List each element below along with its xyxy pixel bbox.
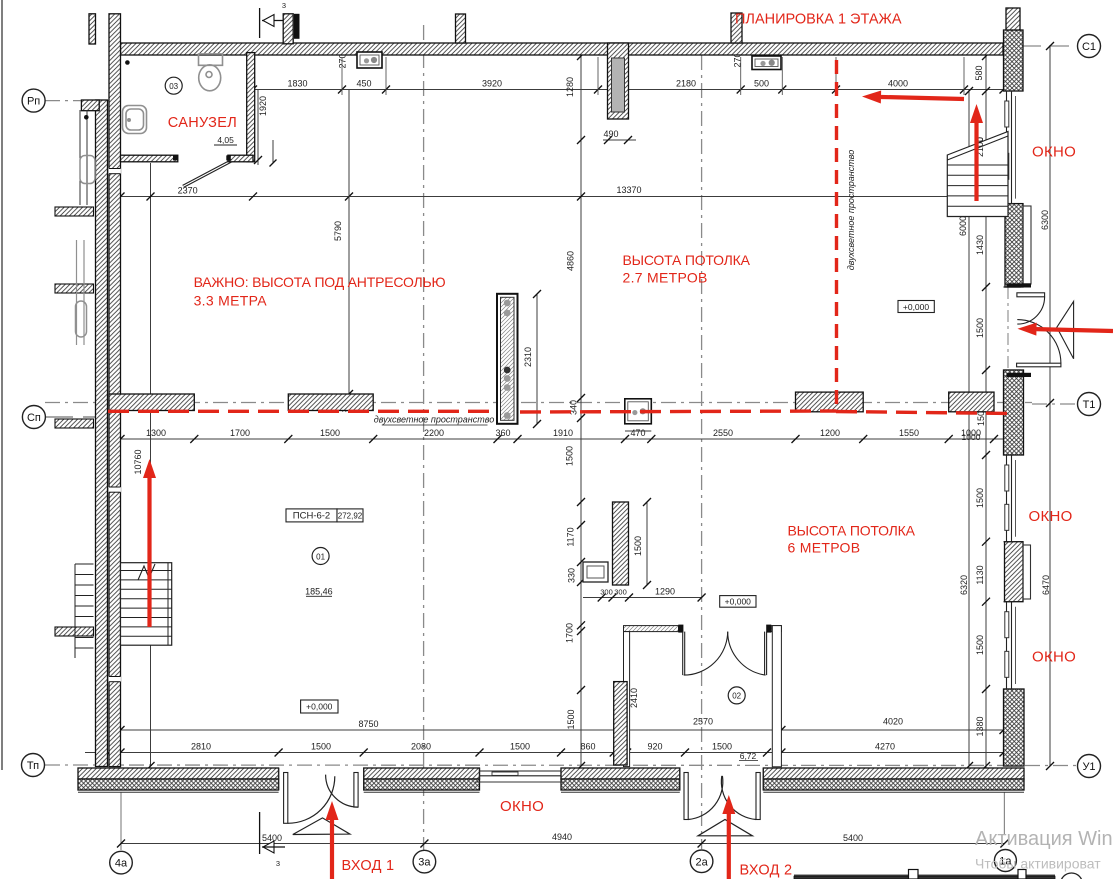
svg-text:860: 860 <box>580 742 595 752</box>
svg-text:1500: 1500 <box>566 709 576 729</box>
svg-text:Тп: Тп <box>27 760 39 772</box>
svg-text:01: 01 <box>316 552 325 561</box>
svg-text:6 МЕТРОВ: 6 МЕТРОВ <box>788 540 861 556</box>
svg-text:6470: 6470 <box>1041 575 1051 595</box>
svg-text:+0,000: +0,000 <box>903 302 930 312</box>
svg-text:3920: 3920 <box>482 79 502 89</box>
svg-text:Т1: Т1 <box>1083 399 1096 411</box>
svg-text:4,05: 4,05 <box>217 135 234 145</box>
svg-text:500: 500 <box>754 79 769 89</box>
svg-text:3а: 3а <box>418 857 431 869</box>
svg-text:С1: С1 <box>1082 41 1096 53</box>
svg-text:330: 330 <box>567 568 577 583</box>
svg-text:2410: 2410 <box>629 688 639 708</box>
svg-text:270: 270 <box>338 53 348 68</box>
svg-text:4020: 4020 <box>883 717 903 727</box>
svg-text:3: 3 <box>282 1 286 10</box>
svg-text:4270: 4270 <box>875 742 895 752</box>
svg-text:1290: 1290 <box>655 587 675 597</box>
svg-text:2.7 МЕТРОВ: 2.7 МЕТРОВ <box>623 270 708 286</box>
svg-text:4940: 4940 <box>552 832 572 842</box>
svg-text:2370: 2370 <box>178 186 198 196</box>
svg-text:2550: 2550 <box>713 428 733 438</box>
svg-text:2200: 2200 <box>424 428 444 438</box>
svg-text:2310: 2310 <box>523 347 533 367</box>
svg-text:1300: 1300 <box>146 428 166 438</box>
svg-text:1280: 1280 <box>565 77 575 97</box>
svg-text:1500: 1500 <box>565 446 575 466</box>
svg-text:+0,000: +0,000 <box>725 597 752 607</box>
svg-text:Активация Win: Активация Win <box>975 828 1113 850</box>
svg-text:1380: 1380 <box>975 716 985 736</box>
svg-text:6320: 6320 <box>959 575 969 595</box>
svg-text:ОКНО: ОКНО <box>1032 649 1076 666</box>
svg-text:1910: 1910 <box>553 428 573 438</box>
svg-text:1920: 1920 <box>258 96 268 116</box>
svg-text:4а: 4а <box>115 858 128 870</box>
svg-text:Сп: Сп <box>27 412 41 424</box>
svg-text:2080: 2080 <box>411 742 431 752</box>
svg-text:двухсветное пространство: двухсветное пространство <box>374 415 494 425</box>
svg-text:3: 3 <box>276 859 280 868</box>
svg-text:2180: 2180 <box>676 79 696 89</box>
svg-text:Рп: Рп <box>27 96 40 108</box>
svg-text:185,46: 185,46 <box>305 586 333 596</box>
svg-text:3.3 МЕТРА: 3.3 МЕТРА <box>194 293 268 309</box>
svg-text:03: 03 <box>169 82 178 91</box>
svg-text:ПЛАНИРОВКА 1 ЭТАЖА: ПЛАНИРОВКА 1 ЭТАЖА <box>735 12 902 28</box>
svg-text:920: 920 <box>647 742 662 752</box>
svg-text:ОКНО: ОКНО <box>1029 508 1073 525</box>
svg-text:10760: 10760 <box>133 449 143 474</box>
svg-text:1130: 1130 <box>975 565 985 584</box>
svg-text:6,72: 6,72 <box>740 751 757 761</box>
svg-text:ВХОД 2: ВХОД 2 <box>740 863 793 879</box>
svg-text:5790: 5790 <box>333 221 343 241</box>
svg-text:САНУЗЕЛ: САНУЗЕЛ <box>168 115 237 131</box>
svg-text:ВЫСОТА ПОТОЛКА: ВЫСОТА ПОТОЛКА <box>623 252 751 268</box>
svg-text:1500: 1500 <box>633 536 643 556</box>
svg-text:6000: 6000 <box>958 216 968 236</box>
svg-text:300: 300 <box>600 588 613 597</box>
svg-text:13370: 13370 <box>616 185 641 195</box>
svg-text:2а: 2а <box>695 856 708 868</box>
svg-text:1500: 1500 <box>975 488 985 508</box>
svg-text:+0,000: +0,000 <box>306 702 333 712</box>
svg-text:1700: 1700 <box>230 428 250 438</box>
svg-text:ПСН-6-2: ПСН-6-2 <box>293 511 330 522</box>
svg-text:1830: 1830 <box>287 79 307 89</box>
svg-text:ВАЖНО: ВЫСОТА ПОД АНТРЕСОЛЬЮ: ВАЖНО: ВЫСОТА ПОД АНТРЕСОЛЬЮ <box>194 274 446 290</box>
svg-text:2570: 2570 <box>693 717 713 727</box>
svg-text:1430: 1430 <box>975 235 985 255</box>
svg-text:4000: 4000 <box>888 79 908 89</box>
svg-text:1000: 1000 <box>962 432 981 442</box>
svg-text:4860: 4860 <box>566 251 576 271</box>
svg-text:1500: 1500 <box>320 428 340 438</box>
svg-text:580: 580 <box>974 65 984 80</box>
svg-text:1500: 1500 <box>712 742 732 752</box>
svg-text:300: 300 <box>614 588 627 597</box>
svg-text:ОКНО: ОКНО <box>1032 144 1076 161</box>
svg-text:5400: 5400 <box>843 833 863 843</box>
svg-text:1500: 1500 <box>975 635 985 655</box>
svg-text:У1: У1 <box>1082 761 1095 773</box>
svg-text:272,92: 272,92 <box>338 512 363 521</box>
svg-text:8750: 8750 <box>358 719 378 729</box>
svg-text:1500: 1500 <box>975 318 985 338</box>
svg-text:ОКНО: ОКНО <box>500 798 544 815</box>
svg-text:двухсветное пространство: двухсветное пространство <box>846 150 856 270</box>
svg-text:470: 470 <box>630 428 645 438</box>
svg-text:1550: 1550 <box>899 428 919 438</box>
svg-text:Чтобы активироват: Чтобы активироват <box>975 856 1101 872</box>
svg-text:02: 02 <box>732 692 741 701</box>
svg-text:6300: 6300 <box>1040 210 1050 230</box>
svg-text:360: 360 <box>495 428 510 438</box>
svg-text:1700: 1700 <box>565 623 575 643</box>
svg-text:490: 490 <box>603 129 618 139</box>
svg-text:ВЫСОТА ПОТОЛКА: ВЫСОТА ПОТОЛКА <box>788 523 916 539</box>
svg-text:ВХОД 1: ВХОД 1 <box>342 858 395 874</box>
svg-text:1500: 1500 <box>510 742 530 752</box>
svg-text:450: 450 <box>356 79 371 89</box>
svg-text:1200: 1200 <box>820 428 840 438</box>
svg-text:1500: 1500 <box>311 742 331 752</box>
svg-text:2810: 2810 <box>191 742 211 752</box>
svg-text:1170: 1170 <box>566 527 576 546</box>
